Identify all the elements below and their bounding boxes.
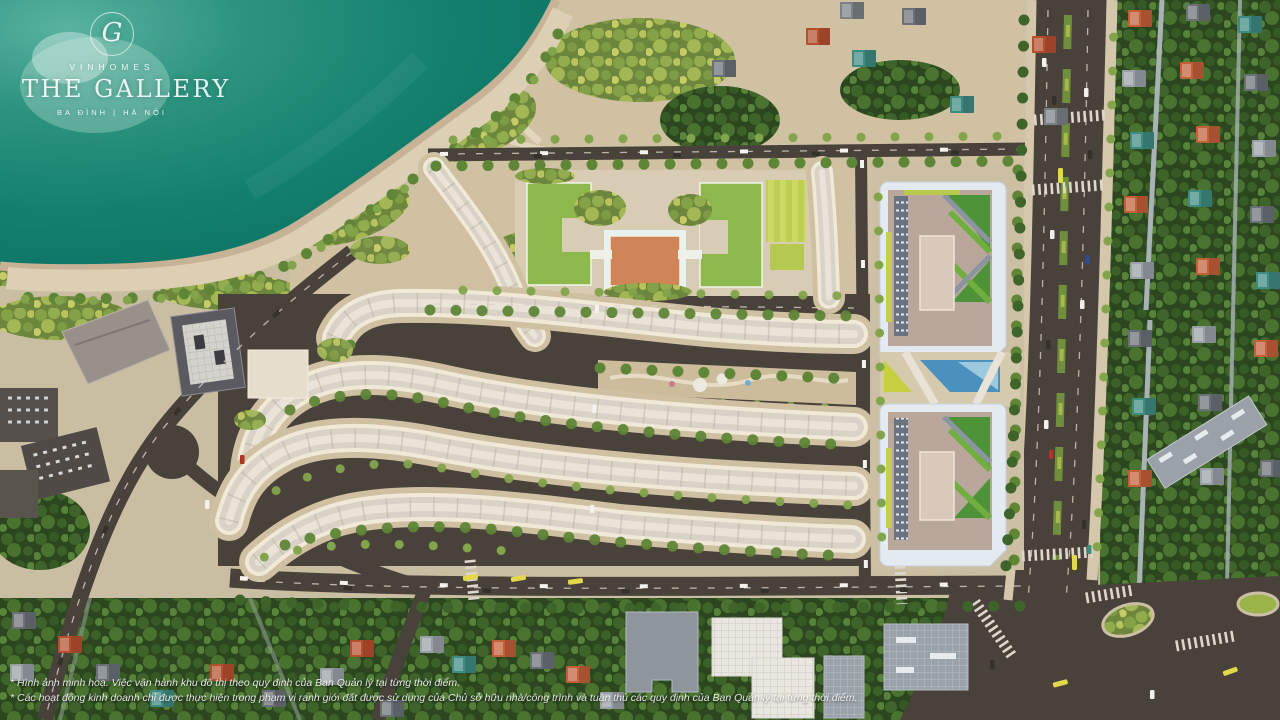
tower-street (861, 156, 865, 582)
playground-canopy (693, 378, 707, 392)
south-office-4 (884, 624, 968, 690)
tower-block-south (880, 404, 1006, 566)
brand-name: VINHOMES (22, 62, 202, 72)
tower-block-north (880, 182, 1006, 362)
white-office (248, 350, 308, 398)
disclaimer: * Hình ảnh minh hoạ. Việc vận hành khu đ… (10, 676, 857, 706)
project-name: THE GALLERY (22, 75, 202, 103)
dark-roof-block-1 (0, 388, 58, 442)
project-logo: G VINHOMES THE GALLERY BA ĐÌNH | HÀ NỘI (22, 12, 202, 117)
courtyard-tower (171, 308, 246, 396)
school-east-row (822, 172, 829, 298)
tower-plaza-pool (880, 352, 1020, 406)
project-location: BA ĐÌNH | HÀ NỘI (22, 108, 202, 117)
gallery-monogram-icon: G (90, 12, 134, 56)
tower-core-south (920, 452, 954, 520)
sports-lawn (766, 180, 806, 242)
tower-core-north (920, 236, 954, 310)
disclaimer-line-2: * Các hoạt động kinh doanh chỉ được thực… (10, 691, 857, 706)
school-campus (515, 168, 815, 301)
disclaimer-line-1: * Hình ảnh minh hoạ. Việc vận hành khu đ… (10, 676, 857, 691)
masterplan-render: G VINHOMES THE GALLERY BA ĐÌNH | HÀ NỘI … (0, 0, 1280, 720)
school-orange-roof-hall (610, 236, 680, 286)
twin-tower-blocks (872, 162, 1024, 570)
